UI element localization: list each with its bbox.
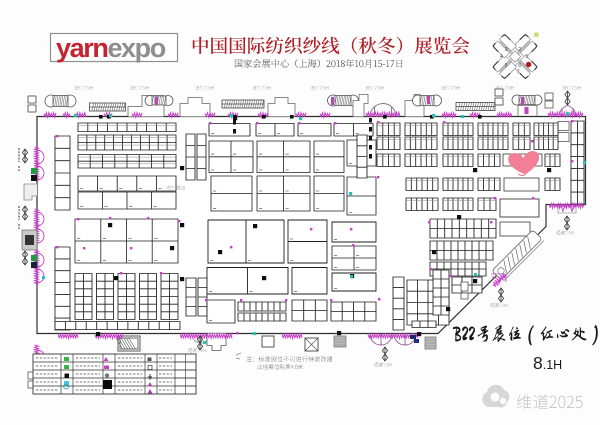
svg-text:4: 4	[500, 54, 503, 60]
svg-text:2: 2	[518, 47, 521, 53]
svg-text:6: 6	[518, 63, 521, 69]
svg-text:3: 3	[505, 47, 508, 53]
svg-text:yarnexpo: yarnexpo	[56, 33, 166, 63]
svg-text:5: 5	[505, 63, 508, 69]
svg-text:7: 7	[517, 69, 520, 75]
svg-text:1: 1	[525, 54, 528, 60]
